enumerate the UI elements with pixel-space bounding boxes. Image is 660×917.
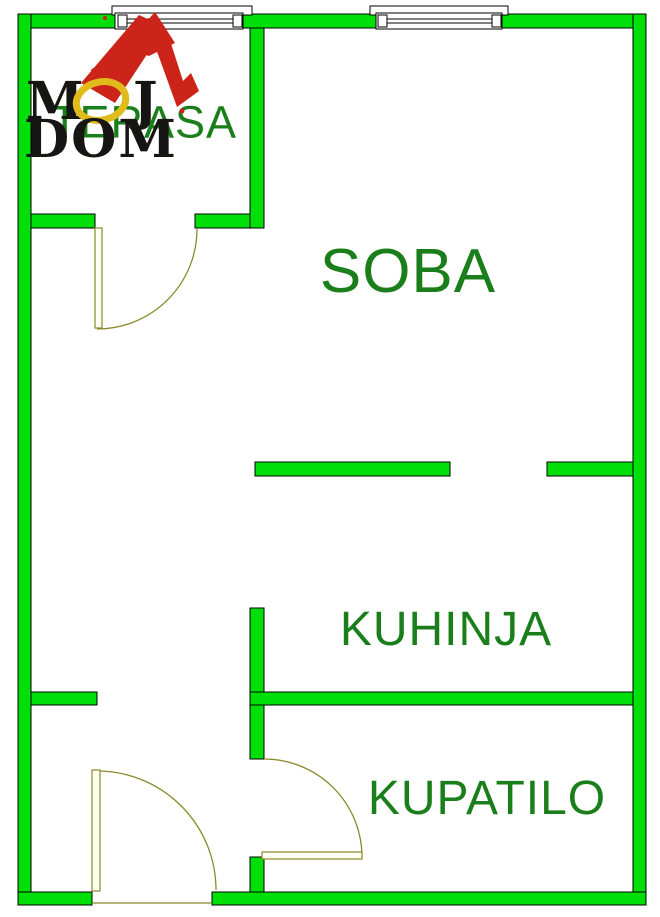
door-terrace-arc [97, 229, 197, 329]
window-jamb-right [492, 15, 501, 27]
door-entrance [92, 770, 216, 903]
wall-right [633, 14, 646, 905]
door-bathroom [262, 759, 362, 859]
room-label-kuhinja: KUHINJA [340, 606, 552, 654]
room-label-kupatilo: KUPATILO [368, 775, 606, 823]
door-bathroom-arc [264, 759, 362, 857]
window-jamb-right [233, 15, 242, 27]
window-body [376, 13, 502, 29]
moj-dom-logo: M J DOM [0, 0, 205, 172]
wall-bathroom-stub [250, 857, 264, 892]
wall-terrace-bottom-right [195, 214, 250, 228]
wall-terrace-right [250, 28, 264, 228]
wall-bottom-left-segment [18, 892, 92, 905]
door-entrance-leaf [92, 770, 100, 891]
floor-plan: TERASA SOBA KUHINJA KUPATILO M J DOM [0, 0, 660, 917]
logo-word-dom: DOM [24, 109, 178, 170]
wall-hall-main [250, 692, 633, 705]
wall-kitchen-top-left [255, 462, 450, 476]
wall-kitchen-partition [250, 608, 264, 759]
wall-bottom-right-segment [212, 892, 646, 905]
wall-kitchen-top-right [547, 462, 633, 476]
door-terrace [95, 228, 197, 329]
door-bathroom-leaf [262, 852, 362, 859]
wall-hall-stub-left [31, 692, 97, 705]
room-label-soba: SOBA [320, 241, 496, 303]
window-room [370, 6, 508, 29]
window-jamb-left [378, 15, 387, 27]
door-entrance-arc [97, 771, 216, 890]
door-terrace-leaf [95, 228, 102, 328]
wall-terrace-bottom-left [31, 214, 95, 228]
